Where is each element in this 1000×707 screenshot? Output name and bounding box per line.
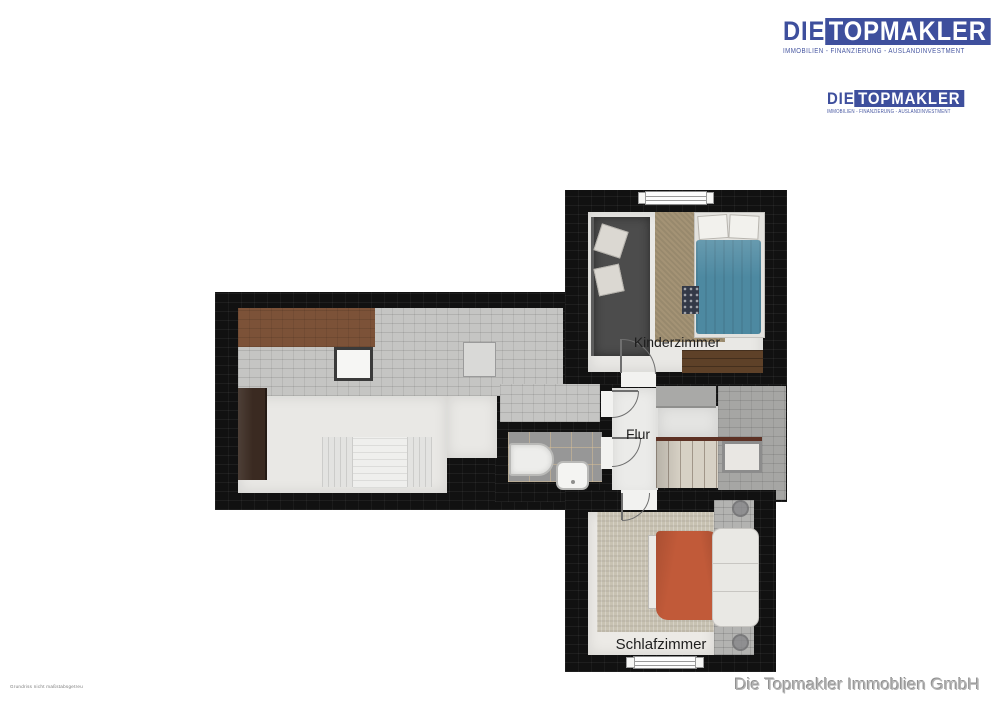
stair-railing	[656, 437, 762, 441]
bed-pillow-1	[697, 214, 729, 240]
bathtub	[509, 443, 554, 476]
logo-tagline: IMMOBILIEN - FINANZIERUNG - AUSLANDINVES…	[783, 48, 990, 55]
kinderzimmer-door-leaf	[620, 339, 622, 373]
logo-text-topmakler-small: TOPMAKLER	[855, 90, 964, 107]
logo-text-die: DIE	[783, 18, 825, 45]
skylight-window	[334, 347, 373, 381]
wardrobe	[238, 388, 267, 480]
sink	[556, 461, 589, 490]
logo-text-die-small: DIE	[827, 90, 855, 107]
logo-text-topmakler: TOPMAKLER	[825, 18, 990, 45]
kinderzimmer-window-jamb-left	[638, 192, 646, 204]
company-name: Die Topmakler Immoblien GmbH	[735, 675, 980, 695]
attic-floor-right	[447, 396, 497, 458]
schlafzimmer-door-leaf	[621, 493, 623, 520]
patterned-cushion	[682, 286, 699, 314]
stairwell-opening	[722, 441, 762, 473]
knee-wall-panel-middle	[353, 437, 407, 488]
fine-print: Grundriss nicht maßstabsgetreu	[10, 684, 83, 689]
sofa-pillow-2	[593, 264, 624, 297]
room-label-kinderzimmer: Kinderzimmer	[634, 334, 720, 350]
roof-vent-bottom	[732, 634, 749, 651]
kinderzimmer-door-gap	[621, 372, 656, 387]
schlafzimmer-window-jamb-right	[695, 657, 704, 668]
roof-tiles-gray-patch	[500, 384, 600, 422]
room-label-schlafzimmer: Schlafzimmer	[616, 636, 707, 653]
skylight-window-2	[463, 342, 496, 377]
landing-floor	[658, 406, 718, 437]
knee-wall-panel-left	[322, 437, 353, 487]
logo-primary: DIETOPMAKLER IMMOBILIEN - FINANZIERUNG -…	[783, 18, 990, 55]
kinderzimmer-window	[645, 191, 707, 205]
schlafzimmer-blanket	[656, 531, 718, 620]
landing-cabinet	[656, 386, 716, 408]
logo-tagline-small: IMMOBILIEN - FINANZIERUNG - AUSLANDINVES…	[827, 109, 964, 115]
logo-secondary: DIETOPMAKLER IMMOBILIEN - FINANZIERUNG -…	[827, 90, 964, 115]
schlafzimmer-window	[633, 656, 697, 669]
schlafzimmer-window-jamb-left	[626, 657, 635, 668]
staircase	[656, 441, 718, 488]
room-label-flur: Flur	[626, 426, 650, 442]
bed-pillow-2	[728, 214, 759, 240]
knee-wall-panel-right	[407, 437, 432, 487]
attic-door-leaf	[612, 390, 638, 392]
schlafzimmer-pillows	[712, 528, 759, 627]
kinderzimmer-window-jamb-right	[706, 192, 714, 204]
kinderzimmer-blanket	[696, 240, 761, 334]
wood-floor-strip	[682, 350, 763, 373]
logo-primary-row: DIETOPMAKLER	[783, 18, 990, 45]
logo-secondary-row: DIETOPMAKLER	[827, 90, 964, 107]
roof-tiles-brown	[238, 308, 375, 347]
roof-vent-top	[732, 500, 749, 517]
